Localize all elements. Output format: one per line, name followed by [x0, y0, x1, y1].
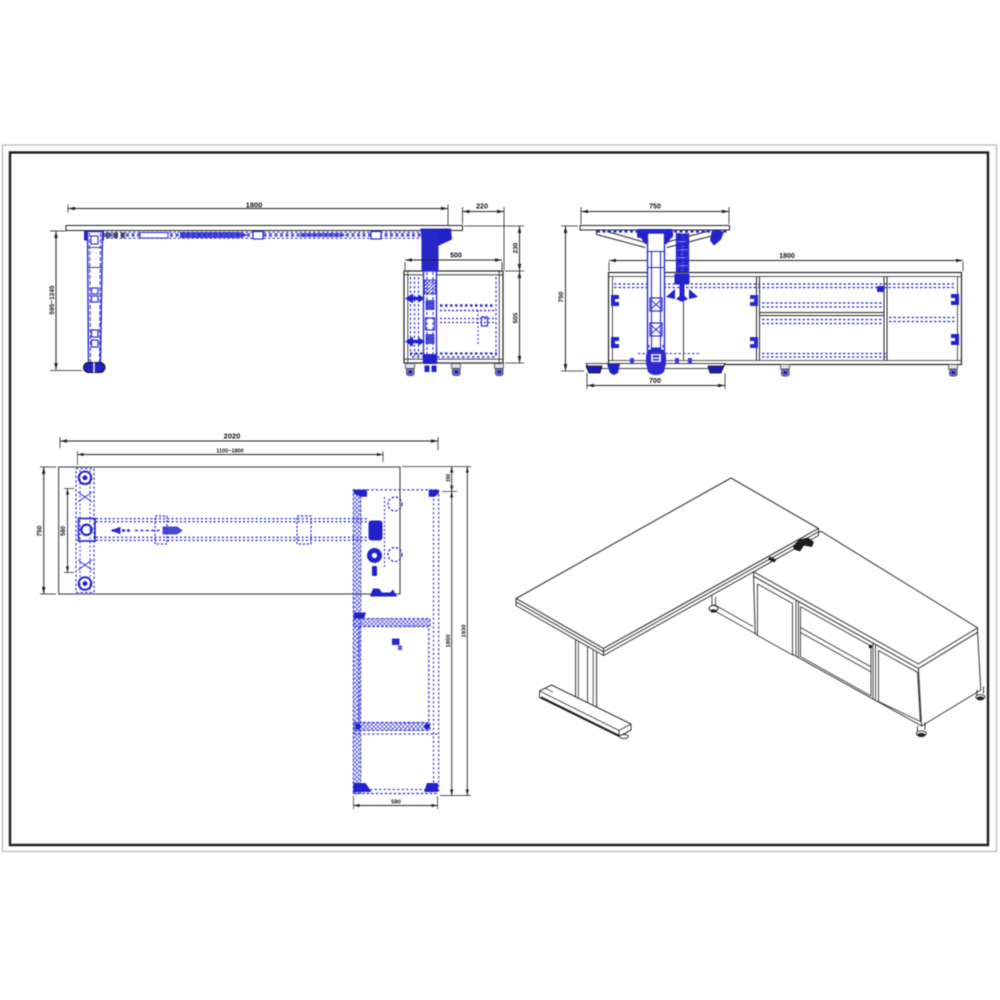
svg-text:595~1245: 595~1245 — [49, 285, 56, 314]
svg-text:1800: 1800 — [446, 635, 452, 648]
svg-text:580: 580 — [391, 800, 401, 806]
svg-text:1100~1800: 1100~1800 — [216, 449, 243, 455]
svg-text:580: 580 — [61, 525, 67, 536]
svg-text:2020: 2020 — [224, 432, 241, 441]
svg-text:750: 750 — [649, 204, 661, 211]
svg-text:1930: 1930 — [462, 625, 468, 638]
svg-text:700: 700 — [649, 378, 661, 385]
svg-text:750: 750 — [558, 291, 565, 302]
svg-text:1800: 1800 — [779, 253, 795, 260]
svg-text:505: 505 — [513, 312, 520, 323]
svg-text:230: 230 — [513, 242, 520, 253]
svg-text:1800: 1800 — [246, 201, 263, 210]
svg-text:190: 190 — [446, 474, 452, 483]
svg-text:500: 500 — [450, 253, 462, 260]
svg-text:220: 220 — [476, 204, 488, 211]
svg-text:750: 750 — [37, 525, 44, 536]
